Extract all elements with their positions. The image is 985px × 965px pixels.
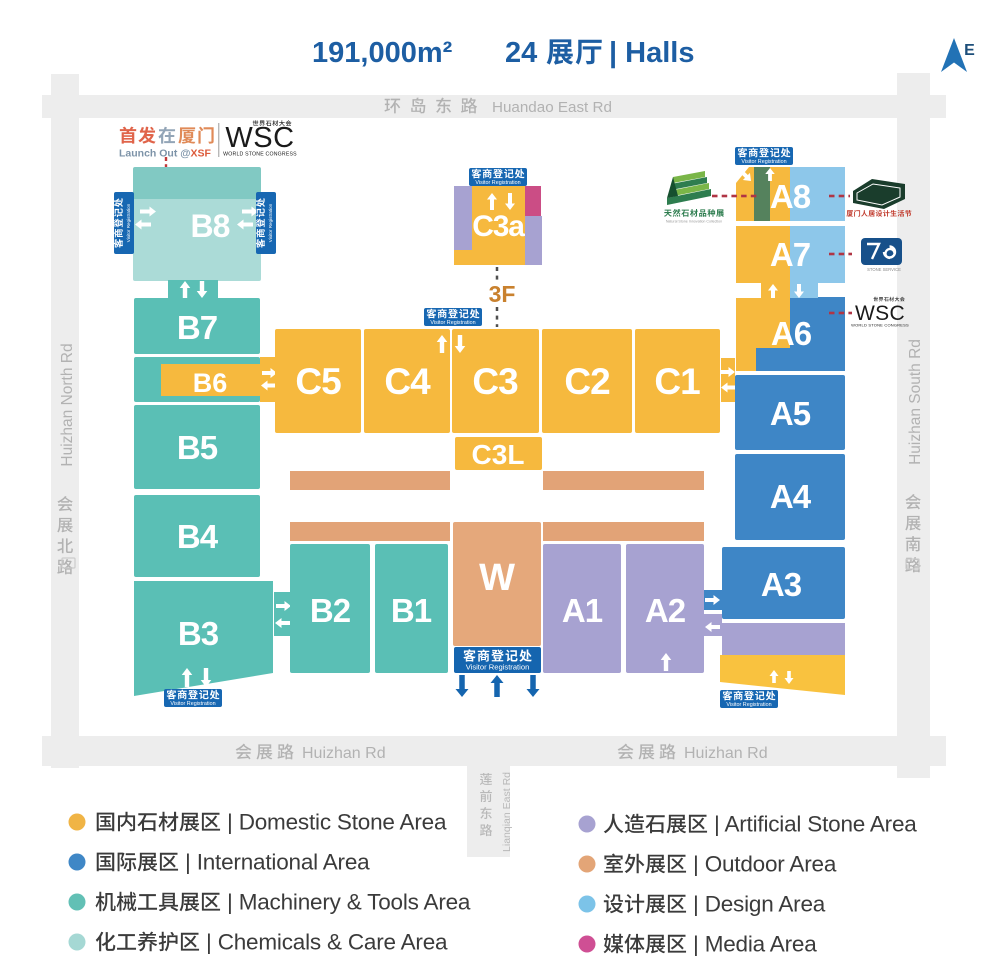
svg-text:C1: C1: [654, 361, 700, 402]
svg-text:| Chemicals & Care Area: | Chemicals & Care Area: [206, 930, 448, 955]
svg-text:Huizhan Rd: Huizhan Rd: [684, 745, 768, 762]
svg-text:B4: B4: [177, 518, 219, 555]
svg-text:B3: B3: [178, 615, 219, 652]
svg-text:A8: A8: [770, 178, 811, 215]
svg-text:B6: B6: [193, 368, 228, 398]
svg-text:Visitor Registration: Visitor Registration: [475, 180, 520, 186]
svg-text:Lianqian East Rd: Lianqian East Rd: [501, 772, 513, 852]
svg-text:WSC: WSC: [225, 122, 294, 154]
svg-text:| Halls: | Halls: [609, 37, 695, 69]
svg-text:Visitor Registration: Visitor Registration: [726, 702, 771, 708]
svg-text:Visitor Registration: Visitor Registration: [268, 203, 273, 242]
svg-text:Visitor Registration: Visitor Registration: [126, 203, 131, 242]
svg-text:B1: B1: [391, 592, 432, 629]
svg-text:B5: B5: [177, 429, 218, 466]
svg-text:C3a: C3a: [472, 210, 525, 243]
svg-text:A2: A2: [645, 592, 686, 629]
svg-text:WORLD STONE CONGRESS: WORLD STONE CONGRESS: [223, 152, 297, 158]
svg-text:XSF: XSF: [191, 148, 212, 160]
svg-text:C5: C5: [295, 361, 341, 402]
svg-text:Huizhan Rd: Huizhan Rd: [302, 745, 386, 762]
svg-text:191,000m²: 191,000m²: [312, 37, 453, 69]
svg-text:| International Area: | International Area: [185, 850, 370, 875]
svg-text:Visitor Registration: Visitor Registration: [170, 701, 215, 707]
svg-text:C2: C2: [564, 361, 610, 402]
svg-text:B2: B2: [310, 592, 351, 629]
svg-text:C4: C4: [384, 361, 431, 402]
svg-text:C3: C3: [472, 361, 518, 402]
svg-text:Visitor Registration: Visitor Registration: [466, 663, 530, 672]
svg-text:Huandao East Rd: Huandao East Rd: [492, 99, 612, 116]
svg-text:Launch Out @: Launch Out @: [119, 148, 191, 160]
svg-text:B7: B7: [177, 309, 217, 346]
svg-text:24: 24: [505, 37, 537, 69]
svg-text:| Artificial Stone Area: | Artificial Stone Area: [714, 812, 917, 837]
svg-text:| Machinery & Tools Area: | Machinery & Tools Area: [227, 890, 471, 915]
svg-text:A7: A7: [770, 236, 810, 273]
svg-text:Visitor Registration: Visitor Registration: [430, 320, 475, 326]
svg-text:W: W: [479, 557, 515, 599]
svg-text:| Domestic Stone Area: | Domestic Stone Area: [227, 810, 447, 835]
svg-text:A4: A4: [770, 478, 812, 515]
svg-text:C3L: C3L: [472, 439, 525, 470]
svg-text:E: E: [964, 42, 975, 59]
svg-text:B8: B8: [191, 208, 230, 244]
svg-text:STONE SERVICE: STONE SERVICE: [867, 267, 901, 272]
svg-text:Visitor Registration: Visitor Registration: [741, 159, 786, 165]
svg-text:Huizhan South Rd: Huizhan South Rd: [907, 339, 924, 465]
svg-text:3F: 3F: [489, 281, 516, 307]
svg-text:A6: A6: [771, 315, 812, 352]
svg-text:A1: A1: [562, 592, 603, 629]
svg-text:A5: A5: [770, 395, 811, 432]
svg-text:A3: A3: [761, 566, 802, 603]
svg-text:| Media Area: | Media Area: [693, 932, 817, 957]
svg-text:| Design Area: | Design Area: [693, 892, 826, 917]
svg-text:Huizhan North Rd: Huizhan North Rd: [59, 343, 76, 466]
svg-text:| Outdoor Area: | Outdoor Area: [693, 852, 837, 877]
svg-text:Natural Stone Innovation Colle: Natural Stone Innovation Collection: [666, 220, 722, 224]
svg-text:WORLD STONE CONGRESS: WORLD STONE CONGRESS: [851, 323, 909, 328]
